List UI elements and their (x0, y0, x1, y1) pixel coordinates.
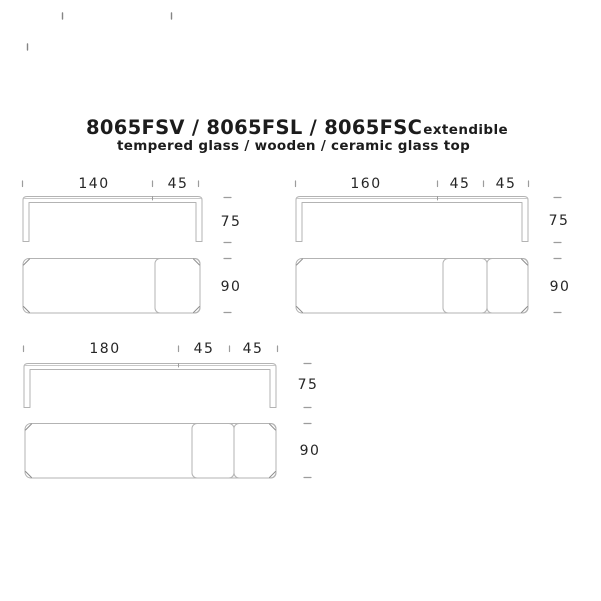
dim-label-leaf-45: 45 (243, 341, 264, 357)
crop-artifact-ticks (28, 13, 172, 50)
table-140-top-plan (23, 259, 200, 314)
dim-label-leaf-45: 45 (496, 176, 517, 192)
plan-outline (296, 259, 528, 314)
table-160-top-plan (296, 259, 528, 314)
tabletop-outline (23, 197, 202, 242)
product-subtitle: tempered glass / wooden / ceramic glass … (117, 138, 470, 154)
spec-sheet-page: 8065FSV / 8065FSL / 8065FSC extendible t… (0, 0, 601, 601)
dim-label-depth-90: 90 (300, 443, 321, 459)
dim-label-leaf-45: 45 (194, 341, 215, 357)
dim-label-height-75: 75 (549, 213, 570, 229)
table-140-front-elevation (23, 197, 202, 242)
dim-label-depth-90: 90 (221, 279, 242, 295)
tabletop-underside-and-legs (24, 370, 276, 408)
tabletop-outline (24, 364, 276, 408)
plan-outline (23, 259, 200, 314)
dim-label-height-75: 75 (298, 377, 319, 393)
tabletop-underside-and-legs (296, 203, 528, 242)
plan-corner-marks (297, 259, 528, 313)
extension-leaf-outline (155, 259, 200, 314)
extension-leaf-outline (443, 259, 487, 314)
plan-outline (25, 424, 276, 479)
product-model-codes: 8065FSV / 8065FSL / 8065FSC (86, 116, 422, 139)
table-180-front-elevation (24, 364, 276, 408)
table-180-top-plan (25, 424, 276, 479)
extension-leaf-outline (192, 424, 234, 479)
product-title-row: 8065FSV / 8065FSL / 8065FSC extendible (86, 116, 508, 139)
dim-label-width-180: 180 (89, 341, 120, 357)
tabletop-outline (296, 197, 528, 242)
tabletop-underside-and-legs (23, 203, 202, 242)
dim-label-leaf-45: 45 (168, 176, 189, 192)
extension-leaf-outline (487, 259, 528, 314)
plan-corner-marks (24, 259, 200, 313)
table-160-dimension-ticks (296, 181, 562, 313)
dim-label-depth-90: 90 (550, 279, 571, 295)
dim-label-width-140: 140 (78, 176, 109, 192)
extendible-tag: extendible (423, 122, 508, 138)
dim-label-width-160: 160 (350, 176, 381, 192)
table-160-front-elevation (296, 197, 528, 242)
extension-leaf-outline (234, 424, 276, 479)
plan-corner-marks (26, 424, 276, 478)
dim-label-height-75: 75 (221, 214, 242, 230)
technical-drawing-canvas (0, 0, 601, 601)
dim-label-leaf-45: 45 (450, 176, 471, 192)
